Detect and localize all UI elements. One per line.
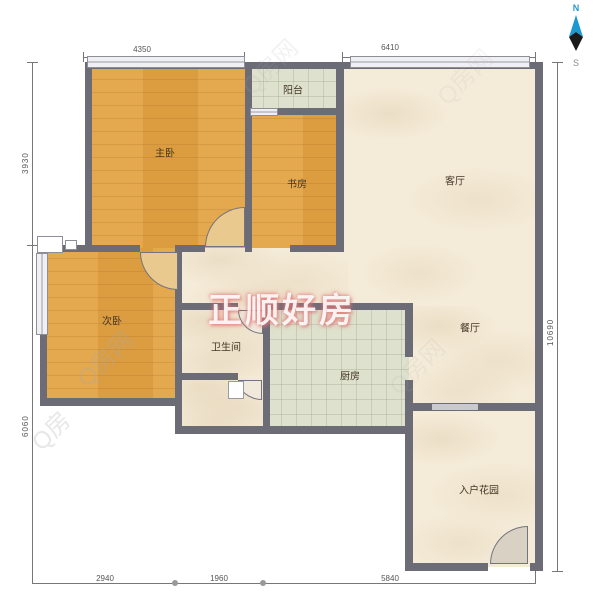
wall-bath-divider	[175, 373, 238, 380]
compass-south-label: S	[560, 58, 592, 68]
wall-left-upper	[85, 62, 92, 252]
sink-fixture	[228, 381, 244, 399]
room-label-study: 书房	[287, 176, 307, 191]
dim-label-top-left: 4350	[112, 45, 172, 54]
dim-line-bottom	[32, 583, 535, 584]
wall-study-right	[336, 62, 344, 252]
center-watermark: 正顺好房	[208, 283, 356, 332]
dim-tick	[83, 52, 84, 62]
floorplan-canvas: 主卧 书房 阳台 客厅 餐厅 次卧 卫生间 厨房 入户花园 4350 6410 …	[0, 0, 600, 605]
window-master-top	[87, 56, 245, 68]
room-label-living: 客厅	[445, 173, 465, 188]
dim-tick	[32, 564, 33, 584]
dim-label-top-right: 6410	[360, 43, 420, 52]
room-label-kitchen: 厨房	[340, 368, 360, 383]
bay-window-small	[65, 240, 77, 250]
wall-second-bottom	[40, 398, 182, 406]
room-label-dining: 餐厅	[460, 320, 480, 335]
dim-break-circle	[260, 580, 266, 586]
wall-garden-bottom-a	[413, 563, 488, 571]
dim-label-right: 10690	[546, 302, 555, 362]
wall-balcony-bottom	[278, 108, 336, 115]
room-living	[340, 65, 538, 310]
dim-label-bottom-right: 5840	[360, 574, 420, 583]
room-label-master: 主卧	[155, 145, 175, 160]
wall-mid-row-b	[178, 245, 205, 252]
dim-tick	[27, 62, 38, 63]
window-second-left	[36, 253, 48, 335]
room-label-balcony: 阳台	[283, 82, 303, 97]
wall-right	[535, 62, 543, 571]
room-label-bathroom: 卫生间	[211, 339, 241, 354]
dim-label-bottom-middle: 1960	[189, 574, 249, 583]
wall-mid-row-c	[290, 245, 340, 252]
dim-line-right	[557, 62, 558, 571]
dim-tick	[552, 571, 563, 572]
room-label-entry-garden: 入户花园	[459, 482, 499, 497]
dim-label-bottom-left: 2940	[75, 574, 135, 583]
bay-window	[37, 236, 63, 253]
wall-kitchen-right-lower	[405, 380, 413, 571]
dim-label-left-upper: 3930	[21, 135, 30, 191]
diagonal-watermark: Q房	[22, 402, 77, 457]
compass-needle-icon	[560, 13, 592, 53]
wall-kitchen-bottom	[175, 426, 413, 434]
wall-garden-bottom-b	[530, 563, 543, 571]
dim-tick	[535, 52, 536, 62]
dim-line-left	[32, 62, 33, 583]
window-living-top	[350, 56, 530, 68]
window-balcony	[250, 108, 278, 116]
garden-threshold	[432, 404, 478, 410]
compass: N S	[560, 3, 592, 68]
compass-north-label: N	[560, 3, 592, 13]
dim-tick	[342, 52, 343, 62]
dim-break-circle	[172, 580, 178, 586]
